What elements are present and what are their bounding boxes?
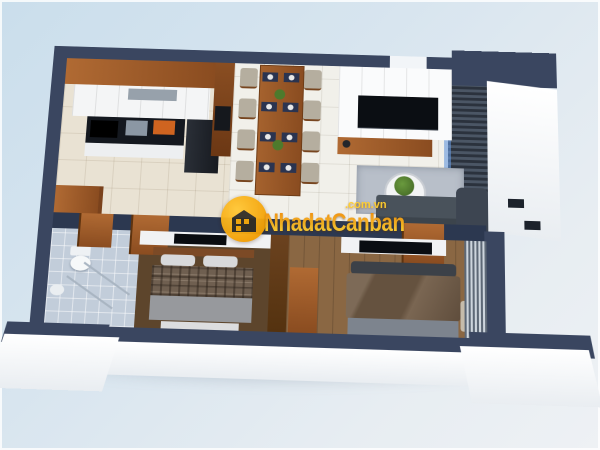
dining-chair: [238, 98, 257, 119]
top-wall-window: [390, 56, 427, 69]
cooktop: [90, 120, 119, 138]
dining-table: [255, 65, 305, 197]
kitchen-sink: [125, 120, 148, 136]
place-setting: [284, 73, 300, 83]
bathroom-door: [77, 213, 114, 248]
dining-chair: [302, 131, 320, 152]
exterior-face-bottom-left: [0, 334, 119, 392]
floor-plan-render: NhadatCanban .com.vn: [0, 0, 600, 450]
dining-chair: [240, 68, 258, 89]
dining-chair: [235, 161, 254, 183]
exterior-face-bottom-right: [460, 346, 600, 407]
place-setting: [262, 72, 278, 82]
place-setting: [259, 162, 275, 172]
right-wall-vent: [524, 221, 540, 230]
toilet-tank: [70, 246, 91, 256]
bedroom2-blanket: [346, 273, 461, 321]
apartment-plan: [26, 46, 565, 385]
pantry-oven: [214, 106, 231, 131]
right-wall-vent: [508, 199, 524, 208]
bedroom2-tv: [359, 240, 432, 254]
exterior-wall-right: [487, 81, 561, 242]
dining-chair: [304, 70, 322, 91]
place-setting: [280, 163, 296, 173]
place-setting: [283, 102, 299, 112]
bedroom2-wardrobe-panel: [288, 267, 319, 333]
dining-chair: [303, 100, 321, 121]
place-setting: [261, 102, 277, 112]
place-setting: [281, 132, 297, 142]
kitchen-glass-cabinet: [128, 89, 177, 102]
coffee-table-plant: [394, 176, 414, 196]
dining-chair: [301, 163, 319, 185]
dining-chair: [237, 129, 256, 150]
cutting-board: [153, 120, 175, 135]
living-tv: [358, 95, 439, 130]
bedroom2-bed-base: [347, 318, 458, 338]
bedroom1-bed-base: [149, 295, 252, 323]
bedroom1-tv: [174, 234, 227, 246]
tv-console: [337, 137, 432, 157]
bedroom2-curtains: [464, 241, 487, 339]
bedroom1-plaid-blanket: [150, 265, 253, 298]
